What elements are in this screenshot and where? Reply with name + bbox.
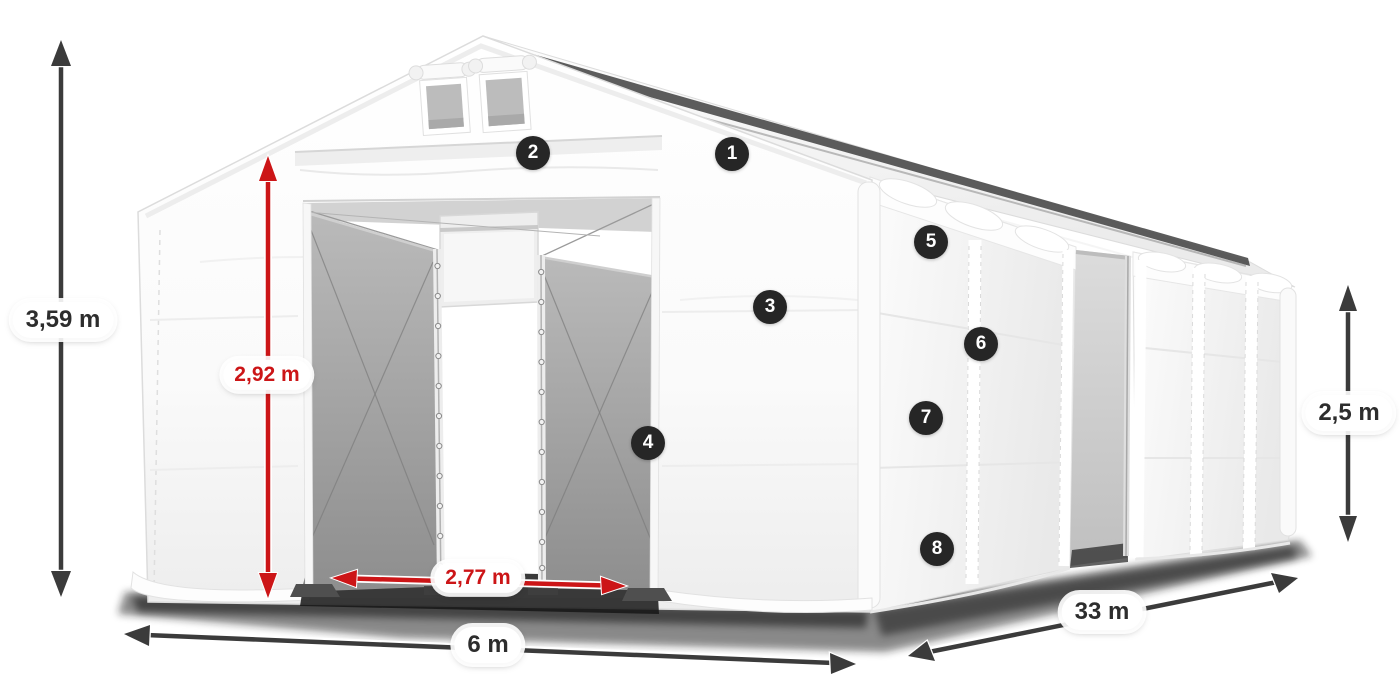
part-marker-1: 1	[715, 137, 749, 171]
door-leaf-left	[307, 213, 443, 591]
part-marker-6: 6	[964, 327, 998, 361]
front-entrance	[290, 198, 672, 614]
part-marker-8: 8	[920, 532, 954, 566]
part-marker-7: 7	[909, 401, 943, 435]
label-side-height: 2,5 m	[1305, 395, 1392, 431]
label-total-height: 3,59 m	[13, 302, 114, 338]
part-marker-2: 2	[516, 136, 550, 170]
side-wall-near	[870, 173, 1076, 612]
label-front-width: 6 m	[454, 627, 521, 663]
part-marker-3: 3	[753, 290, 787, 324]
tent-drawing	[0, 0, 1400, 700]
side-wall-far	[1133, 249, 1296, 560]
part-marker-4: 4	[631, 426, 665, 460]
label-entrance-height: 2,92 m	[223, 360, 310, 390]
part-marker-5: 5	[914, 225, 948, 259]
door-leaf-right	[539, 255, 656, 590]
label-entrance-width: 2,77 m	[434, 563, 521, 593]
side-entrance-opening	[1070, 250, 1130, 568]
label-side-length: 33 m	[1062, 594, 1143, 630]
tent-product-illustration: 3,59 m 2,92 m 2,77 m 6 m 33 m 2,5 m 1 2 …	[0, 0, 1400, 700]
